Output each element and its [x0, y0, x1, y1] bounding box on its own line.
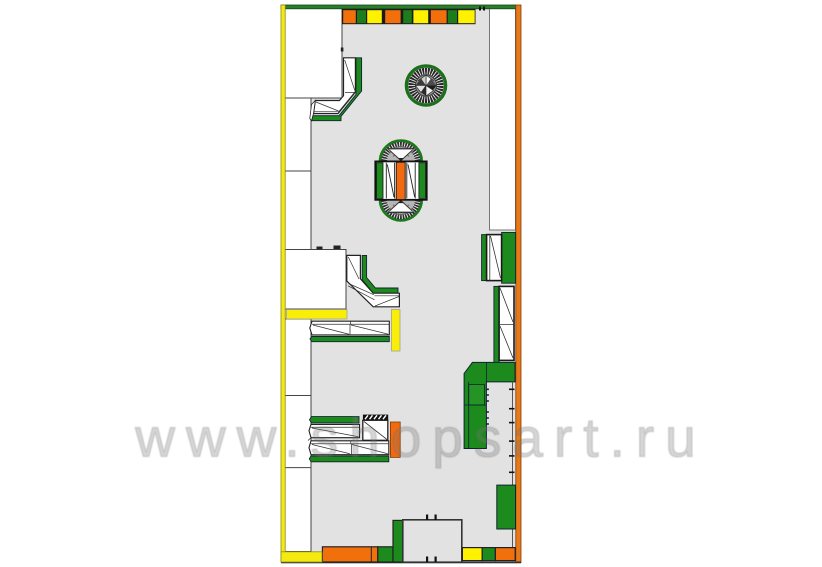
svg-text:www.shopsart.ru: www.shopsart.ru — [134, 407, 707, 469]
